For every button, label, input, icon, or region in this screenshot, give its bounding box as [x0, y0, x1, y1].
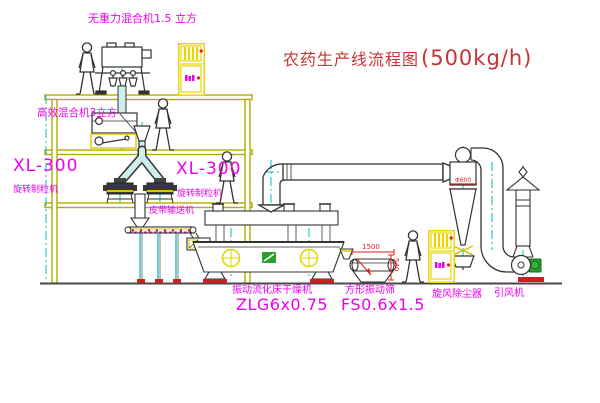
- flow-diagram-page: 农药生产线流程图 (500kg/h) 无重力混合机1.5 立方 高效混合机3立方…: [0, 0, 600, 403]
- label-fan: 引风机: [494, 289, 524, 299]
- label-dryer-model: ZLG6x0.75: [236, 297, 328, 313]
- granulator-left: [103, 178, 137, 203]
- diagram-title: 农药生产线流程图 (500kg/h): [283, 46, 532, 70]
- dim-cyclone-mark: Φ600: [455, 178, 471, 184]
- person-second-floor: [152, 99, 174, 150]
- label-high-eff-mixer: 高效混合机3立方: [37, 108, 117, 119]
- diagram-title-text: 农药生产线流程图: [283, 46, 419, 70]
- granulator-right: [143, 178, 177, 203]
- label-xl-right-model: XL-300: [176, 161, 241, 178]
- label-cyclone: 旋风除尘器: [432, 290, 482, 300]
- label-belt-conveyor: 皮带输送机: [149, 207, 194, 216]
- dim-sieve-height: 540: [392, 258, 399, 271]
- person-top-platform: [76, 43, 98, 94]
- control-cabinet-lower: [429, 231, 455, 283]
- exhaust-stack: [507, 167, 539, 257]
- person-ground: [402, 231, 424, 282]
- fluid-bed-dryer: [187, 204, 344, 283]
- label-xl-left-model: XL-300: [13, 158, 78, 175]
- label-sieve-model: FS0.6x1.5: [341, 297, 425, 313]
- control-cabinet-upper: [179, 44, 205, 96]
- conveyor-supports: [137, 233, 181, 283]
- induced-draft-fan: [512, 256, 545, 283]
- label-xl-right-name: 旋转制粒机: [177, 190, 222, 199]
- feed-pipe: [118, 86, 126, 113]
- diagram-title-capacity: (500kg/h): [421, 46, 532, 70]
- label-xl-left-name: 旋转制粒机: [13, 186, 58, 195]
- square-sieve: [340, 249, 396, 282]
- discharge-pipe: [131, 194, 149, 227]
- label-gravity-free-mixer: 无重力混合机1.5 立方: [88, 13, 197, 24]
- dim-sieve-length: 1500: [362, 244, 380, 251]
